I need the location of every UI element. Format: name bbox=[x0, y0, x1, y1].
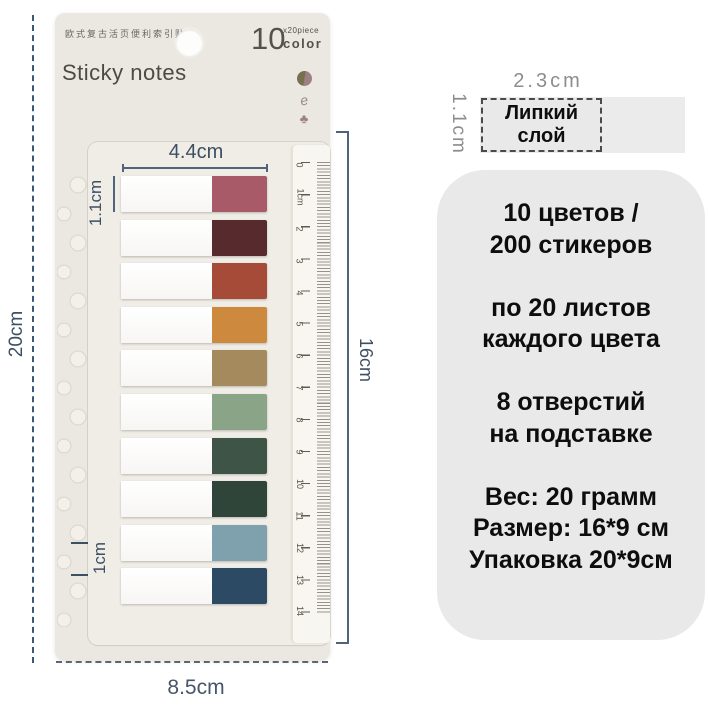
spec-line bbox=[437, 356, 705, 388]
card-height-dashed-line bbox=[32, 15, 34, 663]
tab-row bbox=[121, 350, 267, 386]
spec-line bbox=[437, 450, 705, 482]
tab-pitch-tick-bottom bbox=[71, 574, 88, 576]
tab-width-dimension-line bbox=[122, 167, 268, 169]
sticky-tabs-list bbox=[121, 176, 267, 612]
tab-color-part bbox=[212, 350, 267, 386]
ruler-span-dimension: 16cm bbox=[356, 335, 376, 385]
tab-white-part bbox=[121, 525, 212, 561]
spec-line: Упаковка 20*9см bbox=[437, 545, 705, 577]
tab-color-part bbox=[212, 394, 267, 430]
sticker-height-dimension: 1.1cm bbox=[448, 98, 468, 150]
tab-row bbox=[121, 525, 267, 561]
tab-color-part bbox=[212, 481, 267, 517]
tab-color-part bbox=[212, 438, 267, 474]
tab-white-part bbox=[121, 350, 212, 386]
ruler-span-bracket bbox=[336, 131, 349, 644]
card-width-dashed-line bbox=[56, 661, 328, 663]
tab-height-dimension: 1.1cm bbox=[86, 178, 106, 228]
tab-white-part bbox=[121, 307, 212, 343]
tab-color-part bbox=[212, 525, 267, 561]
spec-line: 8 отверстий bbox=[437, 387, 705, 419]
tab-row bbox=[121, 176, 267, 212]
tab-color-part bbox=[212, 263, 267, 299]
tab-white-part bbox=[121, 568, 212, 604]
card-height-dimension: 20cm bbox=[7, 308, 27, 360]
tab-white-part bbox=[121, 481, 212, 517]
tab-row bbox=[121, 220, 267, 256]
tab-color-part bbox=[212, 307, 267, 343]
spec-line: 10 цветов / bbox=[437, 198, 705, 230]
product-title: Sticky notes bbox=[62, 60, 187, 86]
chinese-subtitle: 欧式复古活页便利索引贴 bbox=[65, 27, 186, 40]
tab-color-part bbox=[212, 568, 267, 604]
tab-color-part bbox=[212, 176, 267, 212]
ruler: 01cm234567891011121314 bbox=[292, 145, 330, 643]
spec-line bbox=[437, 261, 705, 293]
color-count: 10 bbox=[251, 21, 285, 57]
color-word-label: color bbox=[283, 36, 322, 51]
clover-icon: ♣ bbox=[295, 112, 313, 125]
tab-pitch-tick-top bbox=[71, 542, 88, 544]
spec-line: каждого цвета bbox=[437, 324, 705, 356]
tab-white-part bbox=[121, 438, 212, 474]
tab-row bbox=[121, 568, 267, 604]
card-width-dimension: 8.5cm bbox=[150, 676, 242, 700]
spec-line: Размер: 16*9 см bbox=[437, 513, 705, 545]
ruler-mm-ticks bbox=[317, 162, 330, 614]
tab-row bbox=[121, 307, 267, 343]
squiggle-icon: e bbox=[294, 91, 315, 108]
binder-hole-edge bbox=[57, 165, 89, 627]
tab-row bbox=[121, 438, 267, 474]
sticker-width-dimension: 2.3cm bbox=[488, 70, 608, 93]
sticky-layer-label: Липкий слой bbox=[481, 98, 602, 152]
tab-height-dimension-line bbox=[113, 176, 115, 212]
spec-line: на подставке bbox=[437, 419, 705, 451]
spec-line: 200 стикеров bbox=[437, 230, 705, 262]
tab-row bbox=[121, 481, 267, 517]
ruler-cm-ticks bbox=[301, 162, 310, 614]
tab-white-part bbox=[121, 176, 212, 212]
hang-hole bbox=[176, 29, 203, 56]
tab-width-dimension: 4.4cm bbox=[150, 141, 242, 164]
spec-line: по 20 листов bbox=[437, 293, 705, 325]
tab-white-part bbox=[121, 263, 212, 299]
tab-pitch-dimension: 1cm bbox=[90, 535, 110, 581]
header-icon-column: e ♣ bbox=[295, 71, 313, 125]
tab-row bbox=[121, 394, 267, 430]
tab-white-part bbox=[121, 394, 212, 430]
spec-panel: 10 цветов /200 стикеровпо 20 листовкаждо… bbox=[437, 170, 705, 640]
tab-row bbox=[121, 263, 267, 299]
tab-white-part bbox=[121, 220, 212, 256]
tab-color-part bbox=[212, 220, 267, 256]
two-tone-dot-icon bbox=[297, 71, 312, 86]
spec-line: Вес: 20 грамм bbox=[437, 482, 705, 514]
piece-count-label: x20piece bbox=[283, 26, 319, 35]
